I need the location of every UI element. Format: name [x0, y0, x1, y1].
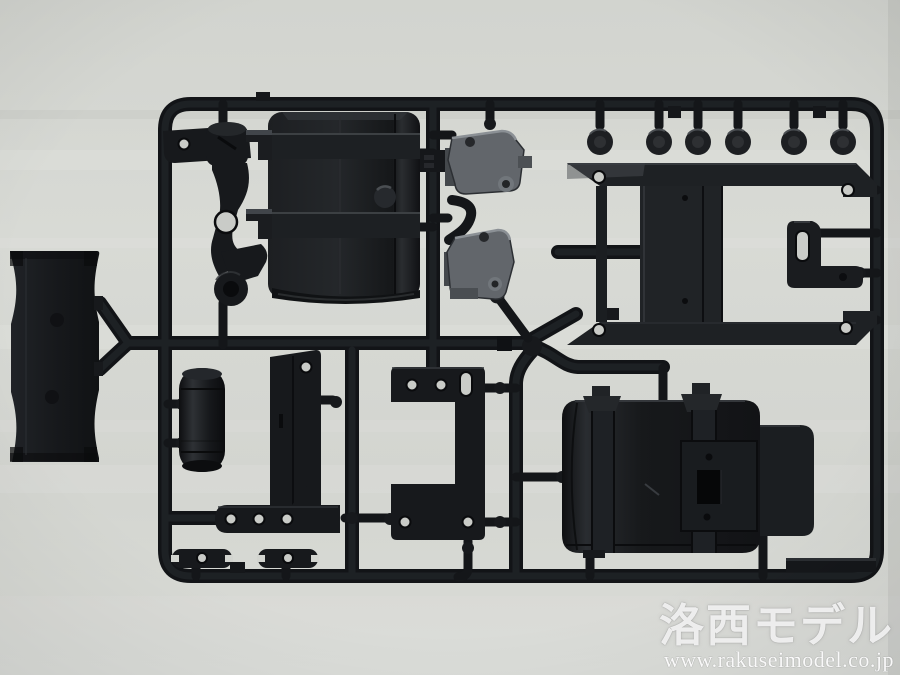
sprue-illustration — [0, 0, 900, 675]
vignette-overlay — [0, 0, 900, 675]
sprue-photo: 洛西モデル www.rakuseimodel.co.jp — [0, 0, 900, 675]
